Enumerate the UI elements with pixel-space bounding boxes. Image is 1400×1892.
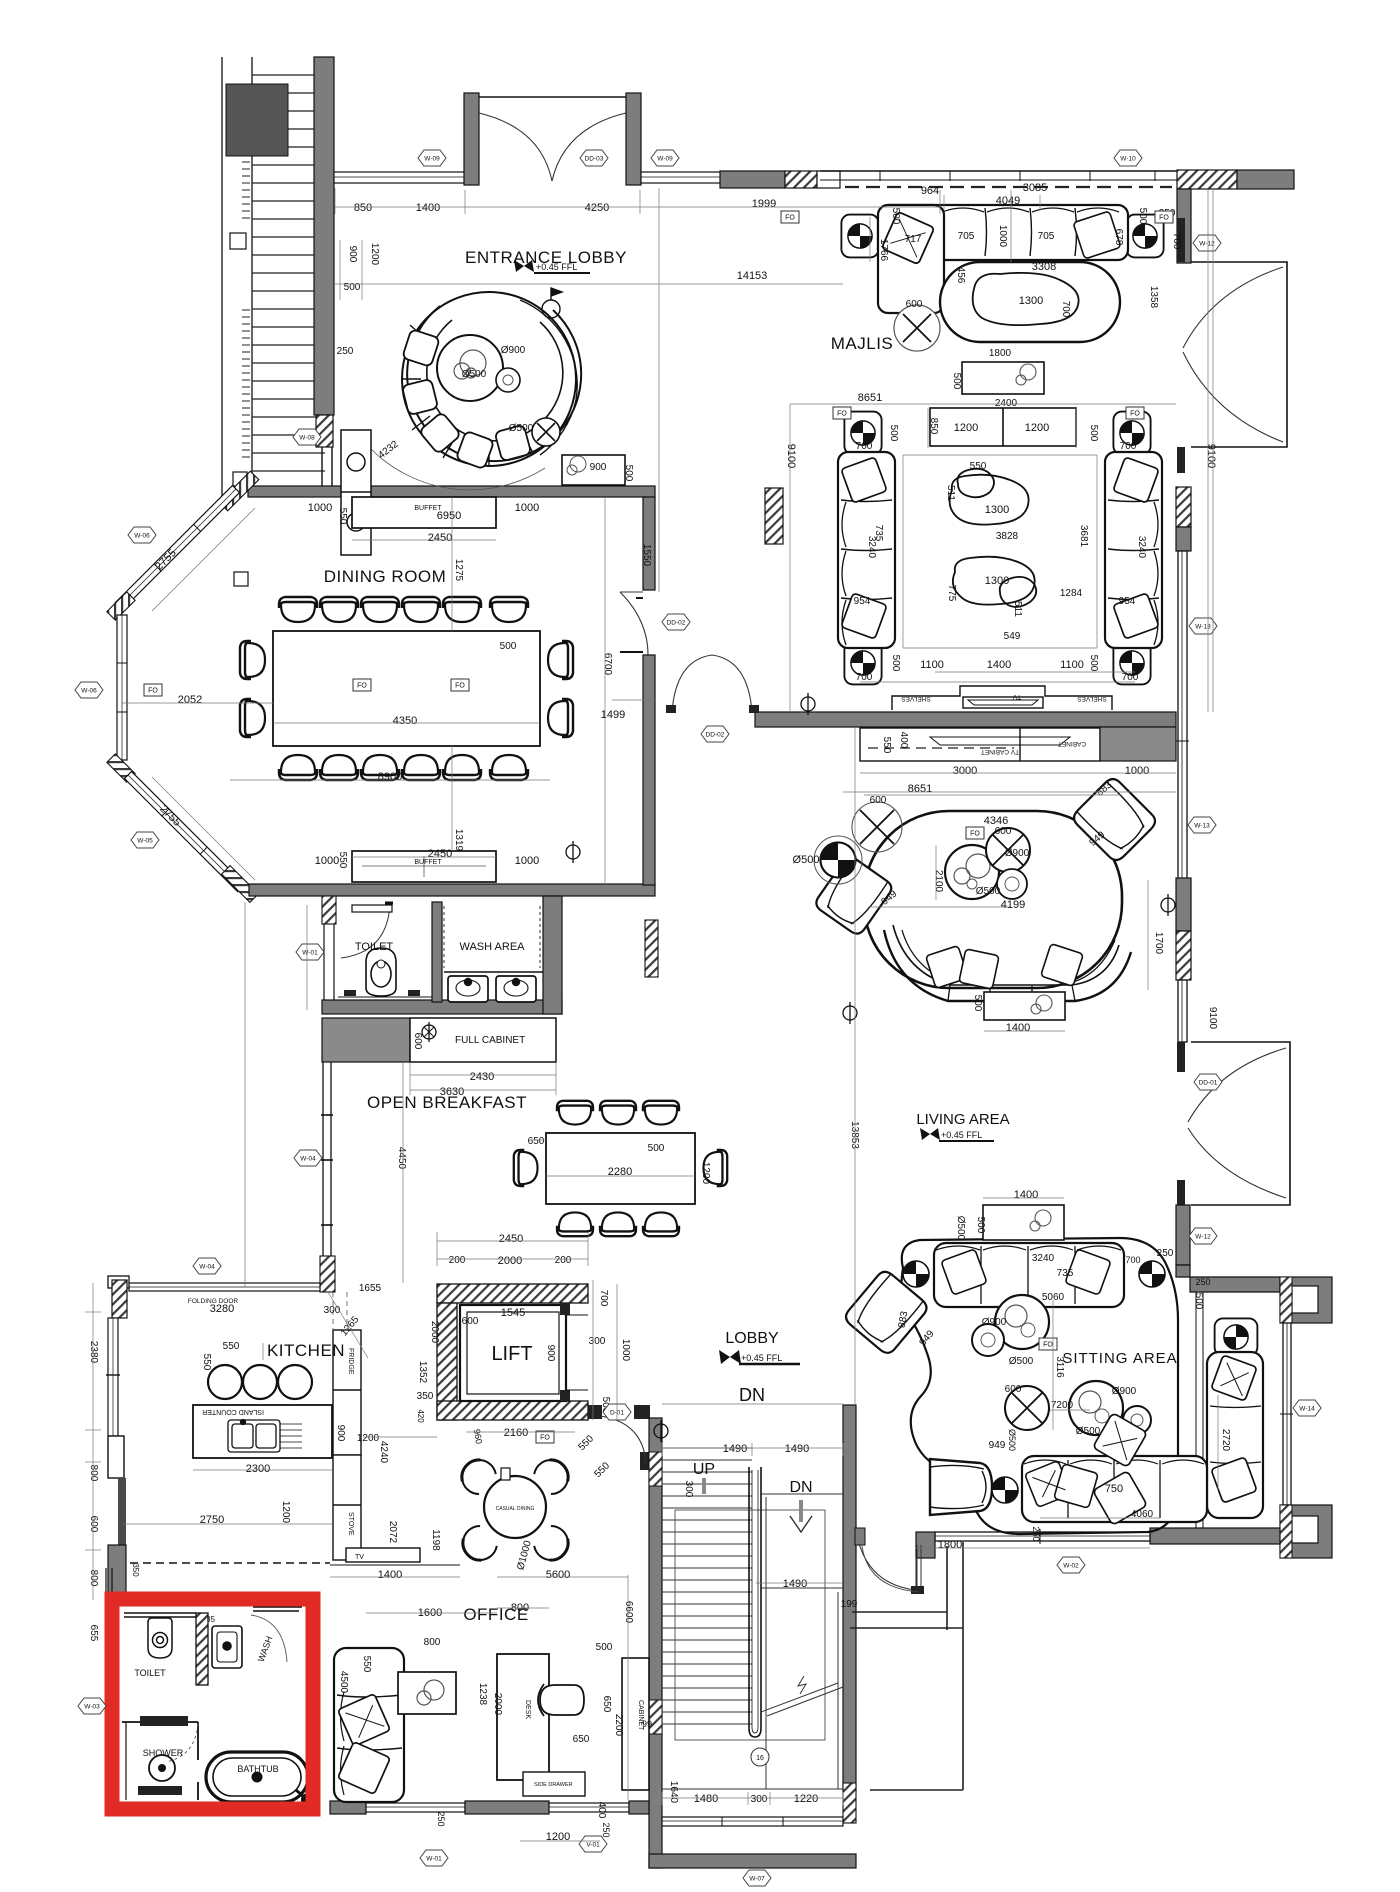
- svg-text:ISLAND COUNTER: ISLAND COUNTER: [202, 1408, 264, 1415]
- svg-text:250: 250: [601, 1822, 611, 1837]
- svg-text:TV CABINET: TV CABINET: [981, 748, 1019, 755]
- svg-text:1220: 1220: [794, 1793, 818, 1805]
- svg-text:FRIDGE: FRIDGE: [347, 1348, 354, 1375]
- svg-text:705: 705: [958, 231, 975, 242]
- svg-text:FO: FO: [837, 411, 847, 418]
- svg-text:W-12: W-12: [1195, 1233, 1211, 1240]
- svg-text:W-09: W-09: [424, 155, 440, 162]
- svg-text:SITTING AREA: SITTING AREA: [1062, 1350, 1177, 1367]
- svg-text:9100: 9100: [1207, 1007, 1218, 1030]
- svg-text:W-03: W-03: [84, 1703, 100, 1710]
- svg-text:+0.45 FFL: +0.45 FFL: [941, 1130, 982, 1140]
- svg-text:800: 800: [88, 1465, 99, 1482]
- svg-text:600: 600: [870, 795, 887, 806]
- svg-text:2100: 2100: [933, 870, 944, 893]
- svg-text:900: 900: [590, 462, 607, 473]
- svg-text:2000: 2000: [492, 1693, 503, 1716]
- svg-text:5600: 5600: [546, 1569, 570, 1581]
- svg-text:W-14: W-14: [1299, 1405, 1315, 1412]
- svg-text:9100: 9100: [1205, 444, 1217, 468]
- svg-text:1545: 1545: [501, 1307, 525, 1319]
- svg-text:Ø500: Ø500: [1009, 1356, 1034, 1367]
- svg-text:700: 700: [1171, 233, 1182, 250]
- svg-text:775: 775: [946, 585, 957, 602]
- svg-text:3280: 3280: [210, 1303, 234, 1315]
- svg-text:250: 250: [1157, 1248, 1174, 1259]
- svg-text:700: 700: [598, 1290, 609, 1307]
- svg-text:Ø900: Ø900: [1112, 1386, 1137, 1397]
- svg-text:1198: 1198: [430, 1529, 441, 1551]
- svg-text:W-05: W-05: [137, 837, 153, 844]
- svg-text:800: 800: [88, 1570, 99, 1587]
- svg-text:9100: 9100: [785, 444, 797, 468]
- svg-text:DD-02: DD-02: [667, 619, 686, 626]
- svg-text:850: 850: [354, 202, 372, 214]
- svg-text:W-04: W-04: [300, 1155, 316, 1162]
- svg-text:2450: 2450: [428, 532, 452, 544]
- svg-text:13853: 13853: [849, 1121, 860, 1149]
- svg-text:750: 750: [1105, 1483, 1123, 1495]
- svg-text:Ø500: Ø500: [955, 1216, 966, 1241]
- svg-text:1300: 1300: [985, 575, 1009, 587]
- svg-text:DESK: DESK: [524, 1700, 531, 1719]
- svg-text:KITCHEN: KITCHEN: [267, 1341, 345, 1360]
- svg-text:2380: 2380: [88, 1341, 99, 1364]
- svg-text:1238: 1238: [477, 1683, 488, 1706]
- svg-text:1000: 1000: [997, 225, 1008, 248]
- svg-text:6700: 6700: [602, 653, 613, 676]
- svg-text:600: 600: [906, 299, 923, 310]
- svg-text:W-01: W-01: [426, 1855, 442, 1862]
- svg-text:900: 900: [545, 1345, 556, 1362]
- svg-text:1000: 1000: [515, 502, 539, 514]
- svg-text:3630: 3630: [440, 1086, 464, 1098]
- svg-text:DN: DN: [789, 1479, 812, 1496]
- svg-text:8651: 8651: [908, 783, 932, 795]
- svg-text:250: 250: [1031, 1526, 1041, 1541]
- svg-text:4450: 4450: [396, 1147, 407, 1170]
- svg-text:2160: 2160: [504, 1427, 528, 1439]
- svg-text:V-01: V-01: [586, 1841, 600, 1848]
- svg-text:1000: 1000: [315, 855, 339, 867]
- svg-text:500: 500: [890, 655, 901, 672]
- svg-text:199: 199: [841, 1599, 858, 1610]
- svg-text:500: 500: [500, 641, 517, 652]
- svg-text:LIFT: LIFT: [491, 1343, 532, 1365]
- svg-text:W-09: W-09: [657, 155, 673, 162]
- svg-text:1400: 1400: [1014, 1189, 1038, 1201]
- svg-text:1999: 1999: [752, 198, 776, 210]
- svg-text:1000: 1000: [1125, 765, 1149, 777]
- svg-text:SHELVES: SHELVES: [901, 695, 931, 702]
- svg-text:TV: TV: [1012, 693, 1021, 700]
- svg-text:600: 600: [1005, 1384, 1022, 1395]
- svg-text:3681: 3681: [1078, 525, 1089, 548]
- svg-text:8651: 8651: [858, 392, 882, 404]
- svg-text:700: 700: [1122, 672, 1139, 683]
- svg-text:W-13: W-13: [1195, 623, 1211, 630]
- svg-text:3116: 3116: [1054, 1356, 1065, 1378]
- svg-text:1200: 1200: [357, 1433, 380, 1444]
- svg-text:1490: 1490: [723, 1443, 747, 1455]
- svg-text:1358: 1358: [1148, 286, 1159, 309]
- svg-text:200: 200: [449, 1255, 466, 1266]
- svg-text:954: 954: [854, 596, 871, 607]
- svg-text:678: 678: [1113, 229, 1124, 246]
- svg-text:1200: 1200: [954, 422, 978, 434]
- svg-text:550: 550: [337, 852, 348, 869]
- svg-text:3308: 3308: [1032, 261, 1056, 273]
- svg-text:Ø900: Ø900: [501, 345, 526, 356]
- svg-text:99: 99: [642, 1719, 652, 1729]
- svg-text:3828: 3828: [996, 531, 1019, 542]
- svg-text:W-04: W-04: [199, 1263, 215, 1270]
- svg-text:FO: FO: [357, 683, 367, 690]
- svg-text:Ø500: Ø500: [1007, 1429, 1017, 1451]
- svg-text:700: 700: [1125, 1255, 1140, 1265]
- svg-text:1480: 1480: [694, 1793, 718, 1805]
- svg-text:W-07: W-07: [749, 1875, 765, 1882]
- svg-text:14153: 14153: [737, 270, 768, 282]
- svg-text:Ø900: Ø900: [1005, 848, 1030, 859]
- svg-text:1700: 1700: [1153, 932, 1164, 955]
- svg-text:700: 700: [1060, 301, 1071, 318]
- svg-text:1499: 1499: [601, 709, 625, 721]
- svg-text:420: 420: [416, 1409, 425, 1423]
- svg-text:Ø500: Ø500: [793, 854, 820, 866]
- svg-text:Ø500: Ø500: [1076, 1426, 1101, 1437]
- svg-text:250: 250: [1195, 1277, 1210, 1287]
- svg-text:Ø900: Ø900: [982, 1317, 1007, 1328]
- svg-text:650: 650: [573, 1734, 590, 1745]
- svg-text:900: 900: [347, 246, 358, 263]
- svg-text:FO: FO: [148, 688, 158, 695]
- svg-text:954: 954: [1119, 596, 1136, 607]
- svg-text:500: 500: [1193, 1293, 1204, 1310]
- svg-text:CABINET: CABINET: [1058, 740, 1086, 747]
- svg-text:BATHTUB: BATHTUB: [237, 1764, 278, 1774]
- svg-text:Ø500: Ø500: [509, 423, 534, 434]
- svg-text:1319: 1319: [453, 829, 464, 852]
- svg-text:BUFFET: BUFFET: [414, 859, 442, 866]
- svg-text:350: 350: [417, 1391, 434, 1402]
- svg-text:4049: 4049: [996, 195, 1020, 207]
- svg-text:500: 500: [596, 1642, 613, 1653]
- svg-text:700: 700: [856, 441, 873, 452]
- svg-text:DD-01: DD-01: [1199, 1079, 1218, 1086]
- svg-text:400: 400: [898, 732, 909, 749]
- svg-text:1800: 1800: [989, 348, 1012, 359]
- svg-text:550: 550: [223, 1341, 240, 1352]
- svg-text:1550: 1550: [641, 544, 652, 567]
- svg-text:1655: 1655: [359, 1283, 382, 1294]
- svg-text:FO: FO: [970, 831, 980, 838]
- svg-text:Ø500: Ø500: [462, 369, 487, 380]
- svg-text:700: 700: [856, 672, 873, 683]
- svg-text:400: 400: [596, 1802, 607, 1819]
- svg-text:200: 200: [555, 1255, 572, 1266]
- svg-text:650: 650: [528, 1136, 545, 1147]
- svg-text:6600: 6600: [623, 1601, 634, 1624]
- svg-text:LOBBY: LOBBY: [725, 1330, 779, 1347]
- svg-text:549: 549: [1004, 631, 1021, 642]
- svg-text:SHOWER: SHOWER: [143, 1748, 184, 1758]
- svg-text:1200: 1200: [700, 1162, 711, 1185]
- svg-text:550: 550: [201, 1354, 212, 1371]
- svg-text:3240: 3240: [1032, 1253, 1055, 1264]
- svg-text:2000: 2000: [498, 1255, 522, 1267]
- svg-text:8900: 8900: [378, 771, 402, 783]
- svg-text:W-02: W-02: [1063, 1562, 1079, 1569]
- svg-text:500: 500: [1137, 208, 1148, 225]
- svg-text:W-06: W-06: [81, 687, 97, 694]
- svg-text:500: 500: [1088, 425, 1099, 442]
- svg-text:UP: UP: [693, 1461, 715, 1478]
- svg-text:1200: 1200: [1025, 422, 1049, 434]
- svg-text:500: 500: [1088, 655, 1099, 672]
- svg-text:1300: 1300: [1019, 295, 1043, 307]
- svg-text:2300: 2300: [246, 1463, 270, 1475]
- svg-text:550: 550: [881, 737, 892, 754]
- svg-text:717: 717: [905, 234, 922, 245]
- svg-text:4199: 4199: [1001, 899, 1025, 911]
- svg-text:600: 600: [412, 1033, 423, 1050]
- svg-text:FO: FO: [785, 215, 795, 222]
- svg-text:500: 500: [975, 1217, 986, 1234]
- svg-text:TV: TV: [355, 1554, 364, 1561]
- svg-text:1100: 1100: [1060, 659, 1084, 671]
- svg-text:949: 949: [989, 1440, 1006, 1451]
- svg-text:500: 500: [972, 995, 983, 1012]
- svg-text:CASUAL DINING: CASUAL DINING: [496, 1506, 535, 1512]
- svg-text:1000: 1000: [515, 855, 539, 867]
- svg-text:W-13: W-13: [1194, 822, 1210, 829]
- svg-text:2072: 2072: [387, 1521, 398, 1544]
- svg-text:2200: 2200: [613, 1714, 624, 1737]
- svg-text:735: 735: [1057, 1268, 1074, 1279]
- svg-text:DD-03: DD-03: [585, 155, 604, 162]
- svg-text:500: 500: [648, 1143, 665, 1154]
- svg-text:850: 850: [928, 418, 939, 435]
- svg-text:1400: 1400: [378, 1569, 402, 1581]
- svg-text:650: 650: [601, 1696, 612, 1713]
- svg-text:DINING ROOM: DINING ROOM: [324, 567, 447, 586]
- svg-text:705: 705: [1038, 231, 1055, 242]
- svg-text:511: 511: [945, 485, 956, 501]
- svg-text:4500: 4500: [338, 1671, 349, 1694]
- svg-text:1490: 1490: [783, 1578, 807, 1590]
- svg-text:W-10: W-10: [1120, 155, 1136, 162]
- svg-text:500: 500: [890, 208, 901, 225]
- svg-text:964: 964: [921, 185, 939, 197]
- svg-text:3240: 3240: [1136, 536, 1147, 559]
- svg-text:250: 250: [337, 346, 354, 357]
- svg-text:1640: 1640: [668, 1781, 679, 1804]
- svg-text:500: 500: [888, 425, 899, 442]
- svg-text:DD-02: DD-02: [706, 731, 725, 738]
- svg-text:900: 900: [335, 1425, 346, 1442]
- svg-text:1400: 1400: [416, 202, 440, 214]
- svg-text:250: 250: [436, 1811, 446, 1826]
- svg-text:2052: 2052: [178, 694, 202, 706]
- svg-text:3000: 3000: [953, 765, 977, 777]
- svg-text:STOVE: STOVE: [347, 1512, 354, 1536]
- svg-text:300: 300: [751, 1794, 768, 1805]
- svg-text:350: 350: [131, 1563, 140, 1577]
- svg-text:Ø500: Ø500: [976, 886, 1001, 897]
- svg-text:FULL CABINET: FULL CABINET: [455, 1035, 525, 1046]
- svg-text:FO: FO: [1130, 411, 1140, 418]
- svg-text:SHELVES: SHELVES: [1077, 695, 1107, 702]
- svg-text:735: 735: [873, 525, 884, 542]
- svg-text:16: 16: [756, 1755, 764, 1762]
- svg-text:600: 600: [88, 1516, 99, 1533]
- svg-text:1200: 1200: [280, 1501, 291, 1524]
- svg-text:700: 700: [1120, 441, 1137, 452]
- svg-text:3085: 3085: [1023, 182, 1047, 194]
- svg-text:FO: FO: [1159, 215, 1169, 222]
- svg-text:FO: FO: [540, 1435, 550, 1442]
- svg-text:1400: 1400: [1006, 1022, 1030, 1034]
- svg-text:BUFFET: BUFFET: [414, 505, 442, 512]
- svg-text:7200: 7200: [1051, 1400, 1074, 1411]
- svg-text:500: 500: [951, 373, 962, 390]
- svg-text:511: 511: [1012, 601, 1023, 617]
- svg-text:500: 500: [623, 465, 634, 482]
- svg-text:550: 550: [970, 461, 987, 472]
- svg-text:4250: 4250: [585, 202, 609, 214]
- svg-text:1000: 1000: [308, 502, 332, 514]
- svg-text:2400: 2400: [995, 398, 1018, 409]
- svg-text:2450: 2450: [499, 1233, 523, 1245]
- svg-text:2720: 2720: [1220, 1429, 1231, 1452]
- svg-text:600: 600: [995, 826, 1012, 837]
- svg-text:LIVING AREA: LIVING AREA: [916, 1111, 1009, 1128]
- svg-text:WASH AREA: WASH AREA: [460, 941, 526, 953]
- svg-text:1766: 1766: [878, 239, 889, 262]
- svg-text:655: 655: [88, 1625, 99, 1642]
- svg-text:550: 550: [337, 508, 348, 525]
- svg-text:456: 456: [955, 267, 966, 284]
- svg-text:300: 300: [683, 1481, 694, 1498]
- svg-text:1100: 1100: [920, 659, 944, 671]
- svg-text:TOILET: TOILET: [134, 1668, 166, 1678]
- svg-text:FO: FO: [455, 683, 465, 690]
- svg-text:W-06: W-06: [134, 532, 150, 539]
- svg-text:550: 550: [361, 1656, 372, 1673]
- svg-text:W-01: W-01: [302, 949, 318, 956]
- svg-text:1000: 1000: [620, 1339, 631, 1362]
- svg-text:800: 800: [424, 1637, 441, 1648]
- svg-text:MAJLIS: MAJLIS: [831, 334, 894, 353]
- svg-text:1284: 1284: [1060, 588, 1083, 599]
- svg-text:FO: FO: [1043, 1342, 1053, 1349]
- svg-text:600: 600: [462, 1316, 479, 1327]
- svg-text:DN: DN: [739, 1385, 765, 1405]
- svg-text:300: 300: [324, 1305, 341, 1316]
- svg-text:1352: 1352: [417, 1361, 428, 1384]
- svg-text:4240: 4240: [378, 1441, 389, 1464]
- svg-text:1275: 1275: [453, 559, 464, 582]
- svg-text:1200: 1200: [369, 243, 380, 266]
- svg-text:1400: 1400: [987, 659, 1011, 671]
- svg-text:TOILET: TOILET: [355, 941, 394, 953]
- svg-text:2430: 2430: [470, 1071, 494, 1083]
- svg-text:+0.45 FFL: +0.45 FFL: [741, 1353, 782, 1363]
- svg-text:1490: 1490: [785, 1443, 809, 1455]
- svg-text:4350: 4350: [393, 715, 417, 727]
- svg-text:1800: 1800: [938, 1539, 962, 1551]
- svg-text:SIDE DRAWER: SIDE DRAWER: [534, 1782, 573, 1788]
- svg-text:+0.45 FFL: +0.45 FFL: [536, 262, 577, 272]
- svg-text:1300: 1300: [985, 504, 1009, 516]
- svg-text:W-08: W-08: [299, 434, 315, 441]
- svg-text:300: 300: [589, 1336, 606, 1347]
- svg-text:2000: 2000: [429, 1321, 440, 1344]
